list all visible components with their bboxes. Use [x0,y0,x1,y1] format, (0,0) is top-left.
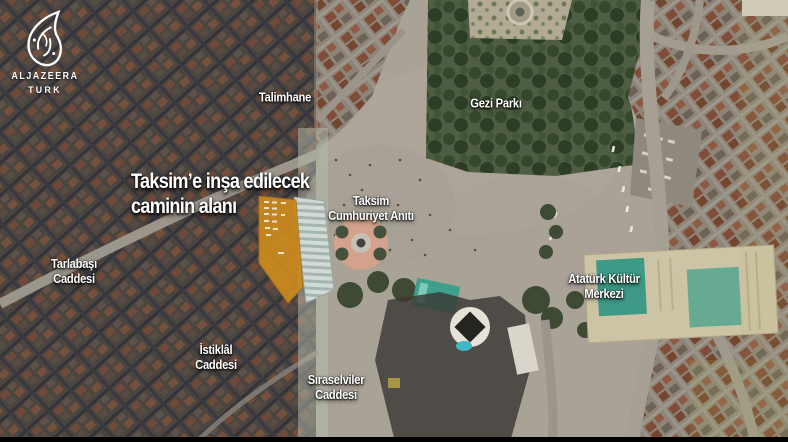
label-istiklal-caddesi: İstiklâl Caddesi [195,342,237,372]
label-ataturk-kultur-merkezi: Atatürk Kültür Merkezi [568,271,640,301]
channel-name: TURK [7,85,82,96]
headline-line1: Taksim’e inşa edilecek [131,169,309,194]
republic-monument [334,216,388,270]
parking-lot [630,118,702,207]
aljazeera-taksim-map-frame: ALJAZEERA TURK Taksim’e inşa edilecek ca… [0,0,788,442]
label-taksim-cumhuriyet-aniti: Taksim Cumhuriyet Anıtı [328,193,414,223]
aljazeera-logo: ALJAZEERA TURK [4,10,86,96]
label-siraselviler-caddesi: Sıraselviler Caddesi [308,372,365,402]
label-gezi-parki: Gezi Parkı [470,96,521,111]
network-name: ALJAZEERA [9,71,81,82]
label-tarlabasi-caddesi: Tarlabaşı Caddesi [51,256,97,286]
marmara-hotel-block [375,292,539,442]
fountain [508,0,532,24]
label-talimhane: Talimhane [259,90,311,105]
letterbox-bar [0,437,788,442]
headline-mosque-site: Taksim’e inşa edilecek caminin alanı [131,169,309,219]
headline-line2: caminin alanı [131,194,309,219]
aljazeera-flame-icon [21,10,69,68]
